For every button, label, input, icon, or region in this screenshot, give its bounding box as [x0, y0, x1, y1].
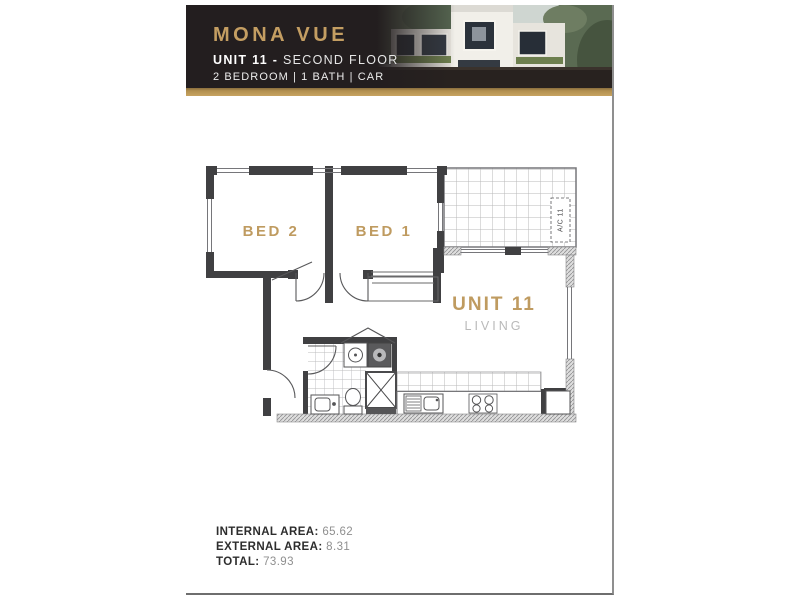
shower-box	[366, 372, 396, 414]
unit-room-label: UNIT 11	[452, 294, 536, 315]
external-area-label: EXTERNAL AREA:	[216, 541, 323, 553]
area-summary: INTERNAL AREA: 65.62 EXTERNAL AREA: 8.31…	[216, 525, 353, 570]
unit-subtitle: UNIT 11 - SECOND FLOOR	[213, 53, 399, 67]
total-area-value: 73.93	[263, 556, 294, 568]
gold-accent-bar	[186, 88, 612, 96]
floorplan: A/C 11 BED 2 BED 1 UNIT 11 LIVING	[204, 164, 596, 424]
ac-label: A/C 11	[557, 208, 564, 232]
external-area-value: 8.31	[326, 541, 350, 553]
living-room-label: LIVING	[465, 319, 524, 333]
bed1-room-label: BED 1	[356, 223, 413, 240]
kitchen-overhead-cupboards	[397, 372, 541, 391]
unit-number: UNIT 11 -	[213, 53, 278, 67]
brand-title: MONA VUE	[213, 24, 399, 47]
internal-area-value: 65.62	[322, 526, 353, 538]
toilet	[346, 389, 361, 406]
ac-unit: A/C 11	[551, 198, 570, 242]
internal-area-label: INTERNAL AREA:	[216, 526, 319, 538]
brochure-page: MONA VUE UNIT 11 - SECOND FLOOR 2 BEDROO…	[186, 5, 614, 595]
header-background: MONA VUE UNIT 11 - SECOND FLOOR 2 BEDROO…	[186, 5, 612, 88]
internal-area-row: INTERNAL AREA: 65.62	[216, 525, 353, 540]
total-area-row: TOTAL: 73.93	[216, 555, 353, 570]
laundry	[341, 328, 395, 367]
bed2-room-label: BED 2	[243, 223, 300, 240]
features-line: 2 BEDROOM | 1 BATH | CAR	[213, 71, 399, 83]
stage: MONA VUE UNIT 11 - SECOND FLOOR 2 BEDROO…	[0, 0, 800, 600]
bed1-robe	[368, 272, 438, 301]
external-area-row: EXTERNAL AREA: 8.31	[216, 540, 353, 555]
header-banner: MONA VUE UNIT 11 - SECOND FLOOR 2 BEDROO…	[186, 5, 612, 96]
fridge-space	[546, 391, 570, 414]
total-area-label: TOTAL:	[216, 556, 260, 568]
building-photo-image	[377, 5, 612, 88]
floor-label: SECOND FLOOR	[283, 53, 399, 67]
